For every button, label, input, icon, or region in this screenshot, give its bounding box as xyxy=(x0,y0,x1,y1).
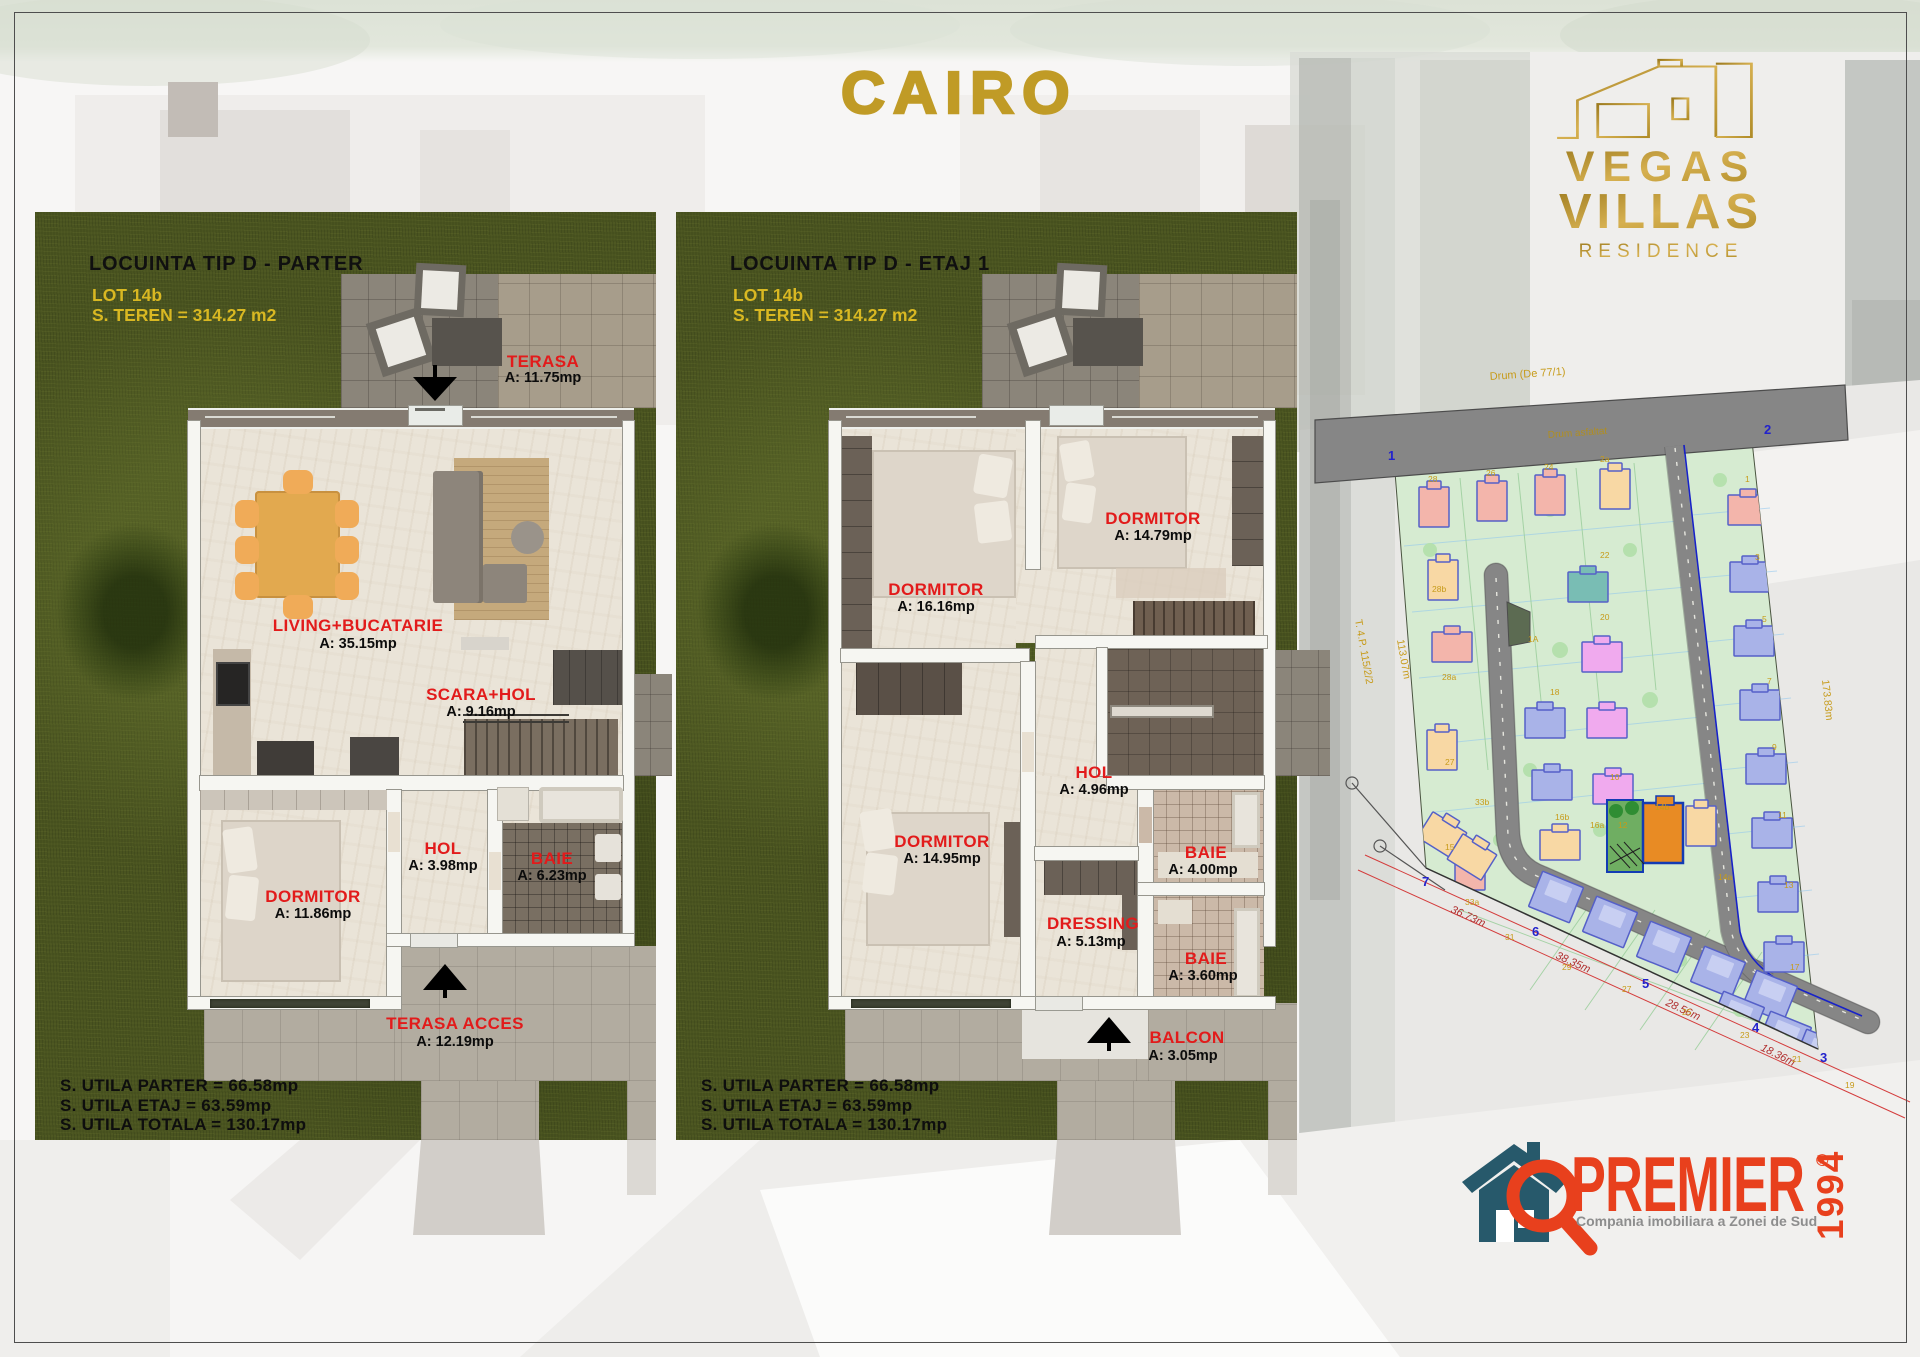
svg-text:T. 4.P. 115/2/2: T. 4.P. 115/2/2 xyxy=(1352,618,1375,685)
svg-text:24: 24 xyxy=(1544,462,1554,472)
svg-text:3: 3 xyxy=(1820,1050,1827,1065)
svg-text:1: 1 xyxy=(1745,474,1750,484)
svg-text:16a: 16a xyxy=(1590,820,1604,830)
svg-text:2: 2 xyxy=(1764,422,1771,437)
svg-text:27: 27 xyxy=(1445,757,1455,767)
svg-text:16b: 16b xyxy=(1555,812,1569,822)
svg-text:173.83m: 173.83m xyxy=(1819,679,1835,721)
svg-text:4: 4 xyxy=(1752,1020,1760,1035)
svg-text:14b: 14b xyxy=(1655,802,1669,812)
svg-text:Drum (De 77/1): Drum (De 77/1) xyxy=(1489,366,1565,383)
svg-text:7: 7 xyxy=(1767,676,1772,686)
svg-text:VEGAS: VEGAS xyxy=(1566,143,1757,191)
svg-text:21: 21 xyxy=(1792,1054,1802,1064)
svg-text:22: 22 xyxy=(1600,550,1610,560)
svg-text:1994: 1994 xyxy=(1810,1150,1851,1240)
svg-text:5: 5 xyxy=(1642,976,1649,991)
svg-text:6: 6 xyxy=(1532,924,1539,939)
svg-text:RESIDENCE: RESIDENCE xyxy=(1579,241,1744,262)
svg-text:18: 18 xyxy=(1550,687,1560,697)
svg-text:20: 20 xyxy=(1600,612,1610,622)
svg-text:19: 19 xyxy=(1845,1080,1855,1090)
svg-text:5: 5 xyxy=(1762,614,1767,624)
svg-text:VILLAS: VILLAS xyxy=(1559,185,1763,239)
svg-text:29: 29 xyxy=(1562,962,1572,972)
svg-text:2a: 2a xyxy=(1600,454,1610,464)
svg-text:13: 13 xyxy=(1784,880,1794,890)
svg-text:10: 10 xyxy=(1610,772,1620,782)
svg-text:28a: 28a xyxy=(1442,672,1456,682)
svg-text:7: 7 xyxy=(1422,874,1429,889)
svg-text:12: 12 xyxy=(1618,820,1628,830)
svg-text:3: 3 xyxy=(1755,552,1760,562)
svg-text:33b: 33b xyxy=(1475,797,1489,807)
svg-text:28: 28 xyxy=(1428,474,1438,484)
svg-text:26: 26 xyxy=(1486,468,1496,478)
svg-text:15: 15 xyxy=(1445,842,1455,852)
svg-text:9: 9 xyxy=(1772,742,1777,752)
svg-text:1: 1 xyxy=(1388,448,1395,463)
svg-text:25: 25 xyxy=(1682,1007,1692,1017)
svg-text:28b: 28b xyxy=(1432,584,1446,594)
svg-text:17: 17 xyxy=(1790,962,1800,972)
svg-text:33a: 33a xyxy=(1465,897,1479,907)
svg-text:23: 23 xyxy=(1740,1030,1750,1040)
svg-text:Compania imobiliara a Zonei de: Compania imobiliara a Zonei de Sud xyxy=(1576,1213,1817,1229)
svg-text:11: 11 xyxy=(1778,810,1787,820)
svg-text:14a: 14a xyxy=(1718,872,1732,882)
svg-text:1A: 1A xyxy=(1528,634,1539,644)
svg-text:38.35m: 38.35m xyxy=(1554,950,1592,976)
svg-text:27: 27 xyxy=(1622,984,1632,994)
svg-text:31: 31 xyxy=(1505,932,1515,942)
